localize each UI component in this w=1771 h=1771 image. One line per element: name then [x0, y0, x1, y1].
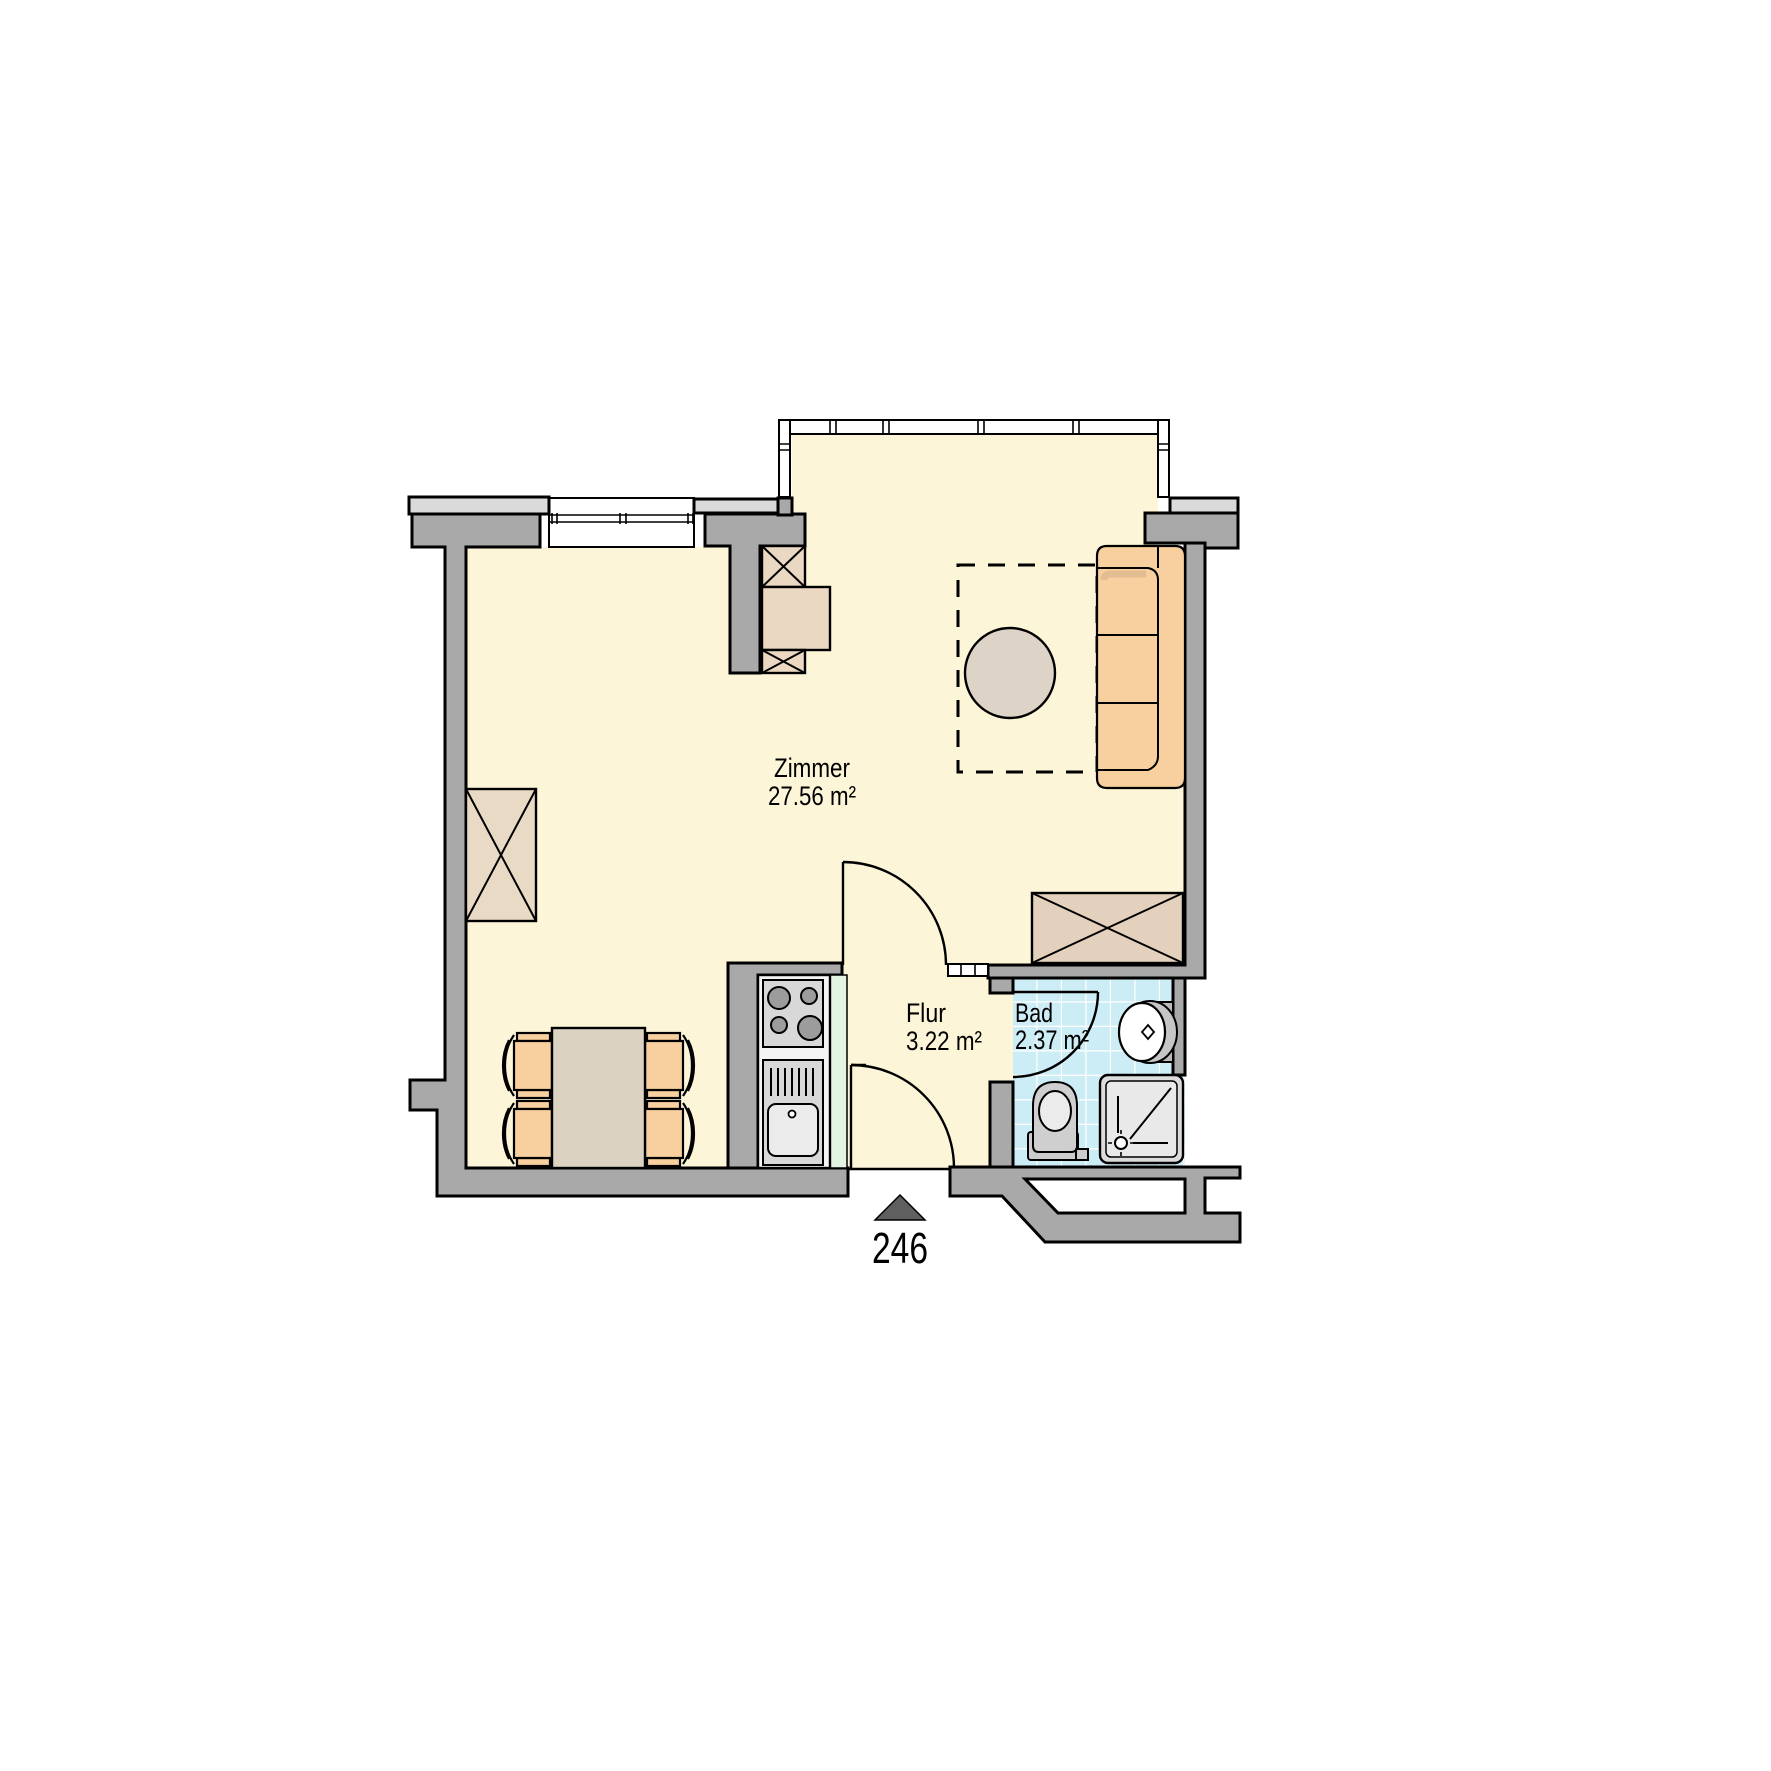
zimmer-label: Zimmer [774, 753, 850, 783]
stove-icon [763, 980, 823, 1047]
dining-set [503, 1028, 694, 1168]
kitchen-unit [758, 975, 830, 1168]
bay-window-right-frame [1158, 420, 1169, 497]
wall-bad-door-jamb-top [990, 978, 1013, 993]
floor-plan-page: 246 Zimmer 27.56 m² Flur 3.22 m² Bad 2.3… [0, 0, 1771, 1771]
kitchen-sink-icon [763, 1060, 823, 1165]
wall-cap-t-pillar [694, 499, 778, 513]
wall-cap-top-left [409, 497, 549, 514]
bay-window-floor [792, 434, 1158, 547]
floor-plan: 246 Zimmer 27.56 m² Flur 3.22 m² Bad 2.3… [0, 0, 1771, 1771]
dining-table [552, 1028, 645, 1168]
drain-icon [1115, 1137, 1127, 1149]
bad-label: Bad [1015, 998, 1053, 1028]
bay-window-top-frame [779, 420, 1169, 434]
round-table [965, 628, 1055, 718]
bath-sink-icon [1119, 1001, 1177, 1063]
flur-area-label: 3.22 m² [906, 1026, 982, 1056]
bad-area-label: 2.37 m² [1015, 1025, 1089, 1055]
sofa [1097, 546, 1185, 788]
door-threshold [948, 964, 988, 976]
kitchen-counter-strip [830, 975, 847, 1168]
faucet-dot [789, 1111, 796, 1118]
wardrobe-above-bath [1032, 893, 1183, 963]
wall-cap-top-right [1170, 498, 1238, 513]
wall-bay-left-stub [778, 498, 792, 515]
left-window [549, 498, 694, 547]
wardrobe-left-wall [466, 789, 536, 921]
flur-label: Flur [906, 998, 946, 1028]
zimmer-area-label: 27.56 m² [768, 781, 856, 811]
shower-icon [1100, 1075, 1183, 1163]
unit-number-label: 246 [872, 1224, 928, 1273]
wall-bad-left-lower [990, 1082, 1013, 1168]
bay-window-left-frame [779, 420, 790, 497]
